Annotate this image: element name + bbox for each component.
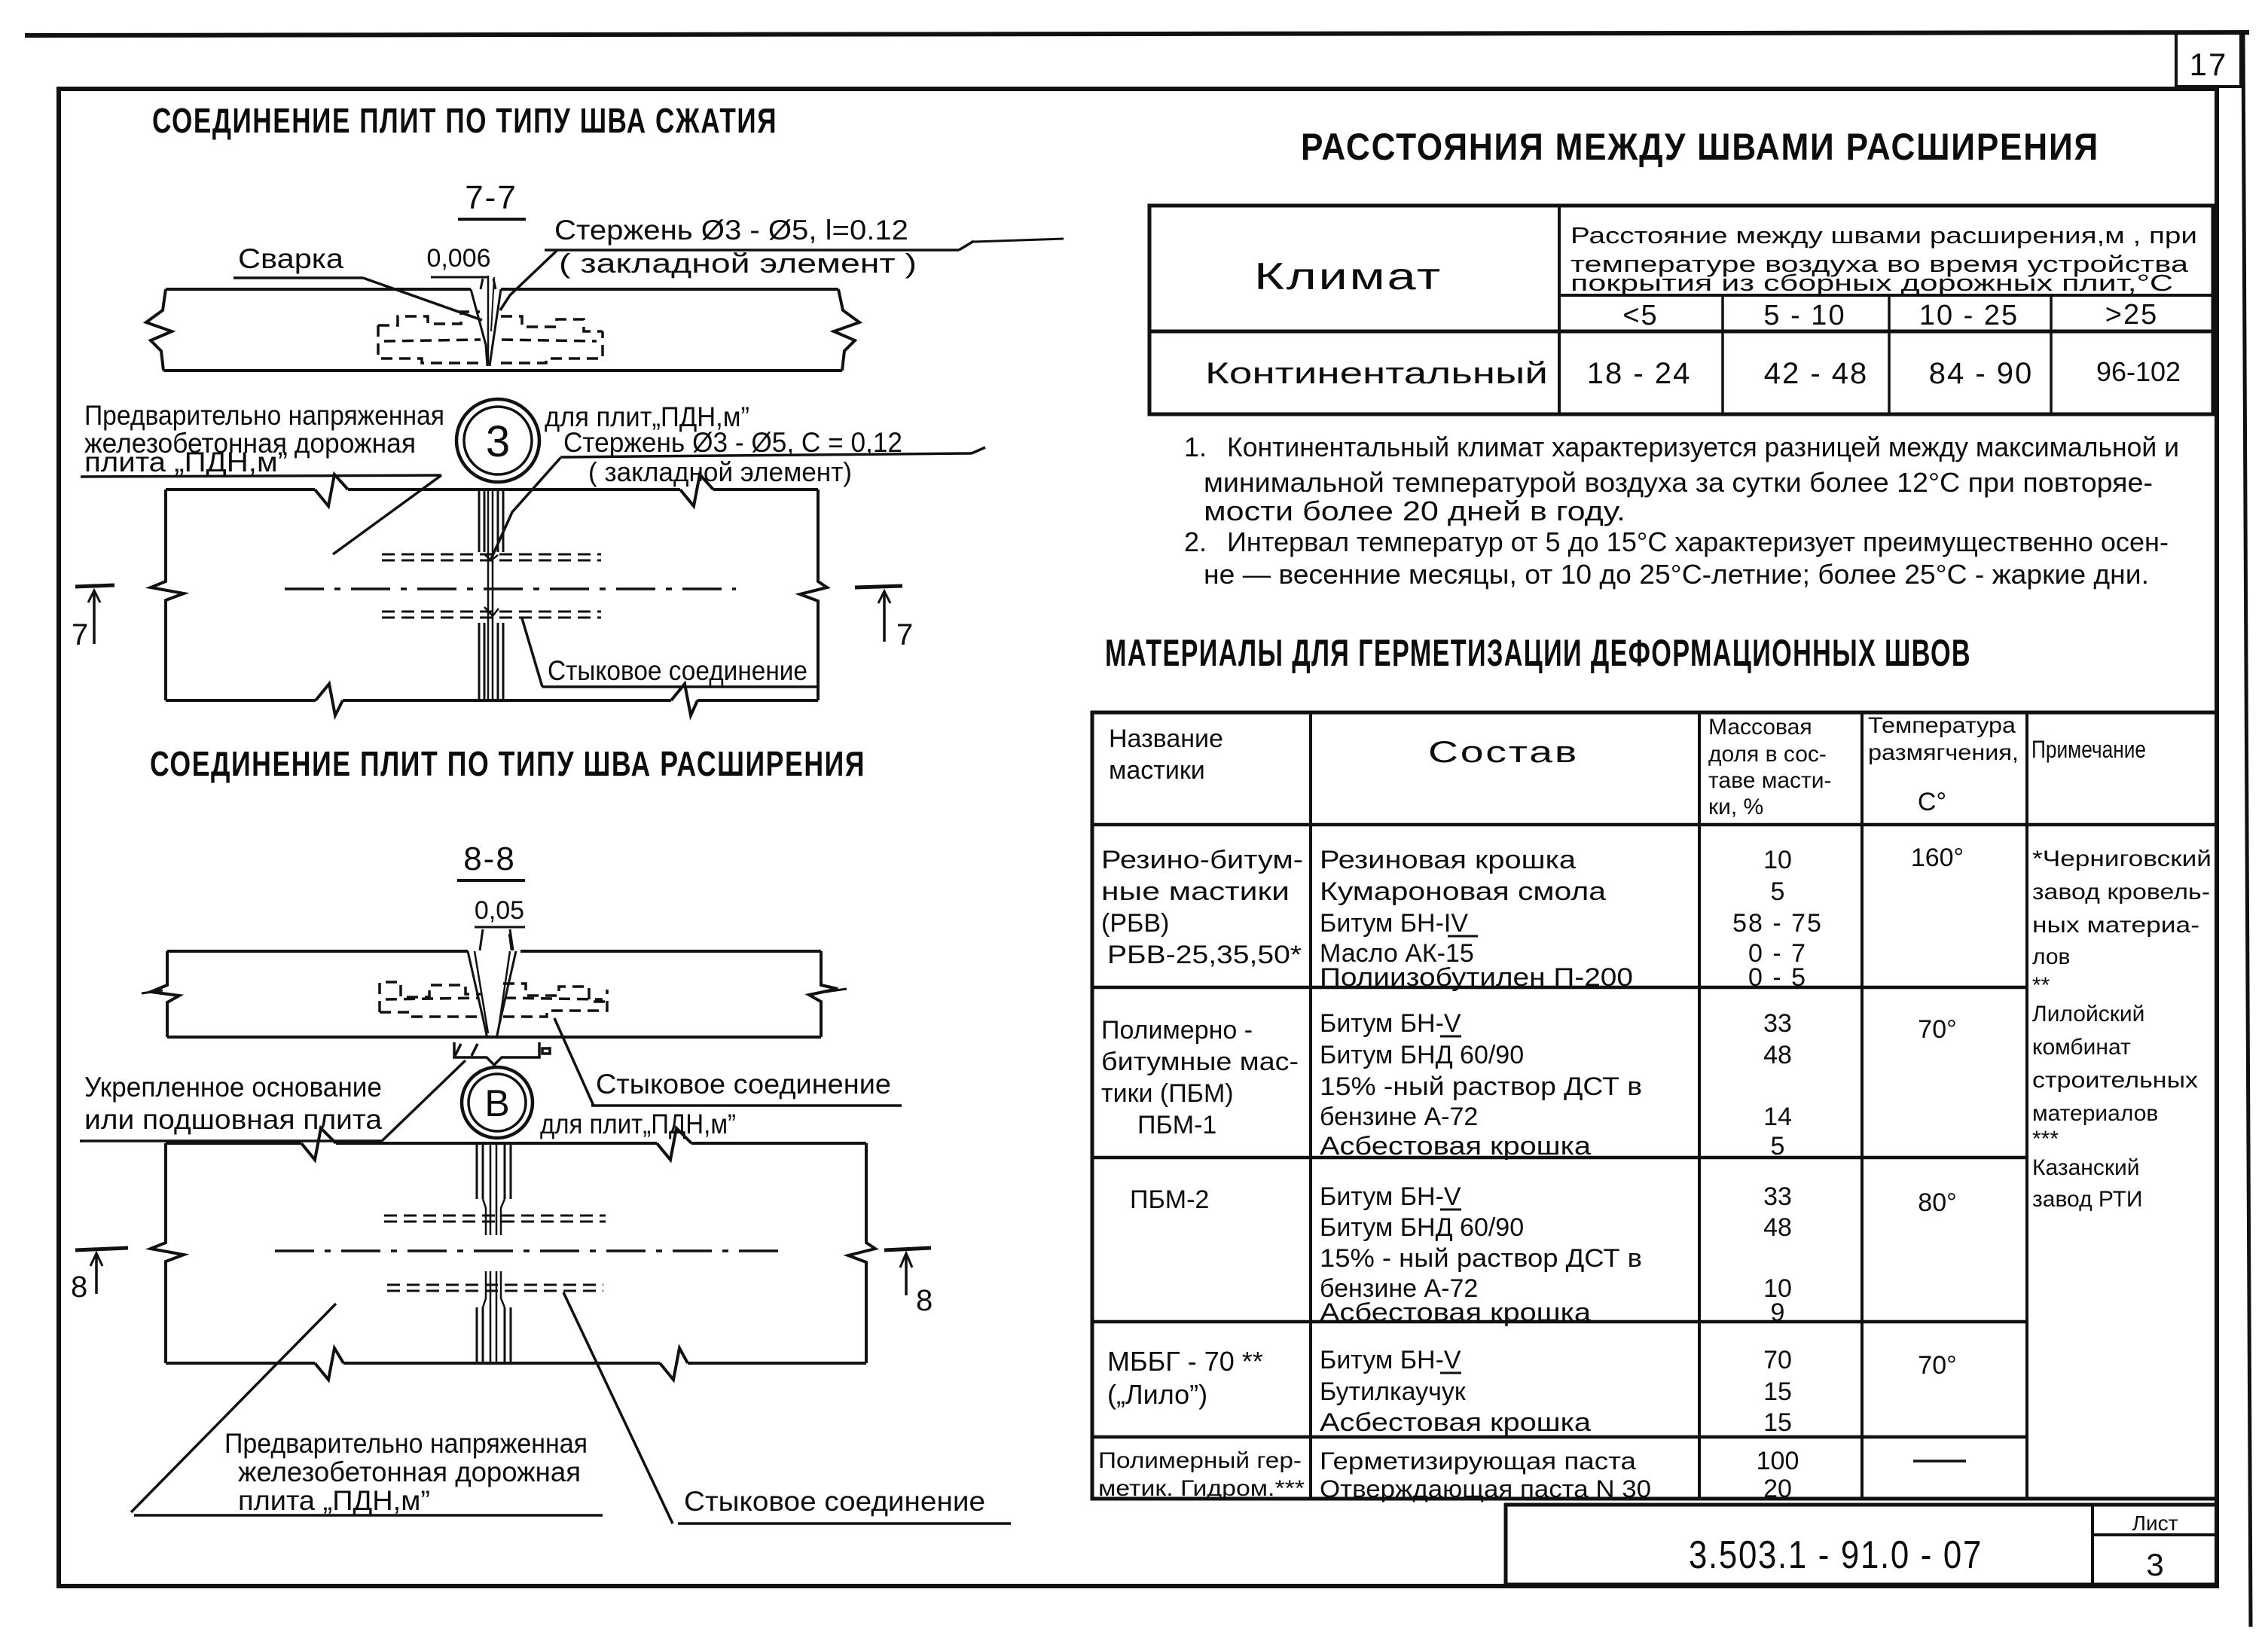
- svg-text:42 - 48: 42 - 48: [1764, 357, 1869, 390]
- svg-text:70°: 70°: [1918, 1015, 1956, 1044]
- svg-text:Укрепленное основание: Укрепленное основание: [84, 1072, 382, 1103]
- svg-text:метик. Гидром.***: метик. Гидром.***: [1098, 1476, 1305, 1501]
- svg-text:Лилойский: Лилойский: [2032, 1002, 2144, 1026]
- svg-text:Асбестовая крошка: Асбестовая крошка: [1320, 1298, 1591, 1327]
- svg-text:Битум БН-IV: Битум БН-IV: [1320, 909, 1468, 938]
- svg-text:Массовая: Массовая: [1708, 715, 1812, 740]
- svg-text:плита „ПДН,м”: плита „ПДН,м”: [238, 1485, 430, 1516]
- svg-text:ПБМ-1: ПБМ-1: [1137, 1111, 1216, 1139]
- svg-text:МББГ - 70 **: МББГ - 70 **: [1107, 1346, 1263, 1377]
- svg-text:70: 70: [1763, 1346, 1792, 1374]
- svg-text:8-8: 8-8: [463, 840, 516, 877]
- svg-text:15% - ный раствор ДСТ в: 15% - ный раствор ДСТ в: [1320, 1244, 1642, 1273]
- svg-text:160°: 160°: [1911, 843, 1964, 872]
- svg-text:1.: 1.: [1184, 432, 1207, 462]
- svg-text:3: 3: [486, 417, 510, 466]
- svg-text:Отверждающая паста N 30: Отверждающая паста N 30: [1320, 1475, 1651, 1502]
- svg-text:минимальной температурой воз: минимальной температурой воздуха за сутк…: [1204, 467, 2153, 498]
- svg-text:Битум БНД 60/90: Битум БНД 60/90: [1320, 1041, 1524, 1069]
- svg-text:ки, %: ки, %: [1708, 795, 1763, 819]
- svg-text:3.503.1 - 91.0 - 07: 3.503.1 - 91.0 - 07: [1689, 1533, 1983, 1577]
- svg-text:33: 33: [1763, 1182, 1792, 1211]
- svg-text:Кумароновая смола: Кумароновая смола: [1320, 877, 1606, 906]
- svg-text:таве масти-: таве масти-: [1708, 768, 1832, 793]
- svg-text:15: 15: [1763, 1377, 1792, 1406]
- svg-text:Резиновая крошка: Резиновая крошка: [1320, 846, 1576, 874]
- svg-text:*Черниговский: *Черниговский: [2032, 847, 2212, 871]
- svg-text:железобетонная дорожная: железобетонная дорожная: [238, 1457, 581, 1487]
- svg-text:Состав: Состав: [1428, 736, 1579, 769]
- svg-text:Стыковое соединение: Стыковое соединение: [548, 655, 807, 686]
- svg-text:Полиизобутилен П-200: Полиизобутилен П-200: [1320, 963, 1633, 992]
- svg-text:бензине А-72: бензине А-72: [1320, 1103, 1478, 1131]
- svg-text:МАТЕРИАЛЫ ДЛЯ ГЕРМЕТИЗАЦИИ: МАТЕРИАЛЫ ДЛЯ ГЕРМЕТИЗАЦИИ ДЕФОРМАЦИОННЫ…: [1105, 632, 1971, 674]
- svg-text:тики (ПБМ): тики (ПБМ): [1101, 1079, 1234, 1108]
- svg-text:(РБВ): (РБВ): [1101, 909, 1169, 938]
- svg-text:мости более 20 дней в году.: мости более 20 дней в году.: [1204, 496, 1625, 526]
- svg-text:17: 17: [2190, 47, 2228, 82]
- svg-text:РАССТОЯНИЯ МЕЖДУ ШВАМИ РАСШ: РАССТОЯНИЯ МЕЖДУ ШВАМИ РАСШИРЕНИЯ: [1301, 126, 2099, 168]
- svg-text:0 - 5: 0 - 5: [1748, 963, 1807, 992]
- svg-text:доля в сос-: доля в сос-: [1708, 742, 1827, 767]
- svg-text:Сварка: Сварка: [238, 243, 343, 274]
- svg-text:Лист: Лист: [2132, 1512, 2178, 1535]
- svg-text:Асбестовая крошка: Асбестовая крошка: [1320, 1408, 1591, 1437]
- svg-text:( закладной элемент): ( закладной элемент): [588, 456, 852, 487]
- svg-text:Примечание: Примечание: [2031, 736, 2146, 763]
- svg-text:мастики: мастики: [1109, 756, 1205, 785]
- svg-text:5 - 10: 5 - 10: [1763, 300, 1845, 331]
- svg-text:48: 48: [1763, 1041, 1792, 1069]
- svg-text:8: 8: [71, 1271, 87, 1304]
- svg-text:15% -ный раствор ДСТ в: 15% -ный раствор ДСТ в: [1320, 1072, 1642, 1101]
- svg-text:10 - 25: 10 - 25: [1919, 300, 2019, 331]
- svg-text:ные мастики: ные мастики: [1101, 877, 1290, 906]
- svg-text:комбинат: комбинат: [2032, 1035, 2131, 1060]
- svg-text:(„Лило”): („Лило”): [1107, 1379, 1207, 1410]
- svg-text:20: 20: [1763, 1475, 1792, 1503]
- svg-text:Расстояние между швами расшире: Расстояние между швами расширения,м , пр…: [1571, 222, 2197, 249]
- svg-text:В: В: [484, 1082, 509, 1124]
- svg-text:Битум БН-V: Битум БН-V: [1320, 1346, 1461, 1374]
- svg-text:Битум БНД 60/90: Битум БНД 60/90: [1320, 1213, 1524, 1242]
- svg-text:ПБМ-2: ПБМ-2: [1130, 1185, 1209, 1214]
- svg-text:ных материа-: ных материа-: [2032, 913, 2199, 938]
- svg-text:РБВ-25,35,50*: РБВ-25,35,50*: [1107, 941, 1302, 969]
- svg-text:0,05: 0,05: [475, 896, 524, 925]
- svg-text:8: 8: [916, 1284, 933, 1317]
- svg-text:15: 15: [1763, 1408, 1792, 1437]
- svg-text:14: 14: [1763, 1103, 1792, 1131]
- svg-text:84 - 90: 84 - 90: [1929, 357, 2034, 390]
- svg-text:80°: 80°: [1918, 1188, 1956, 1217]
- svg-text:для плит„ПДН,м”: для плит„ПДН,м”: [540, 1109, 736, 1139]
- svg-text:Стыковое соединение: Стыковое соединение: [684, 1486, 985, 1517]
- svg-text:33: 33: [1763, 1009, 1792, 1038]
- svg-text:СОЕДИНЕНИЕ ПЛИТ ПО ТИПУ ШВ: СОЕДИНЕНИЕ ПЛИТ ПО ТИПУ ШВА СЖАТИЯ: [152, 101, 777, 140]
- svg-text:Климат: Климат: [1254, 255, 1442, 297]
- svg-text:Континентальный климат харак: Континентальный климат характеризуется р…: [1227, 432, 2179, 462]
- svg-text:Интервал температур от 5 до 1: Интервал температур от 5 до 15°С характе…: [1227, 526, 2169, 557]
- svg-text:3: 3: [2146, 1547, 2163, 1582]
- svg-text:Бутилкаучук: Бутилкаучук: [1320, 1377, 1467, 1406]
- svg-text:Казанский: Казанский: [2032, 1155, 2139, 1180]
- svg-text:9: 9: [1771, 1298, 1785, 1327]
- svg-text:не — весенние месяцы, от 10 до: не — весенние месяцы, от 10 до 25°С-летн…: [1204, 559, 2149, 590]
- svg-text:плита „ПДН,м”: плита „ПДН,м”: [84, 447, 288, 477]
- svg-text:100: 100: [1757, 1447, 1799, 1475]
- svg-text:**: **: [2032, 973, 2050, 998]
- svg-text:Асбестовая крошка: Асбестовая крошка: [1320, 1132, 1591, 1161]
- svg-text:***: ***: [2032, 1127, 2059, 1152]
- svg-text:5: 5: [1771, 1132, 1785, 1161]
- svg-text:Предварительно напряженная: Предварительно напряженная: [224, 1428, 588, 1459]
- svg-text:материалов: материалов: [2032, 1101, 2158, 1126]
- svg-text:Битум БН-V: Битум БН-V: [1320, 1182, 1461, 1211]
- svg-text:0,006: 0,006: [426, 244, 490, 273]
- svg-text:строительных: строительных: [2032, 1068, 2198, 1093]
- svg-text:Название: Название: [1109, 724, 1223, 753]
- svg-text:48: 48: [1763, 1213, 1792, 1242]
- svg-text:Предварительно напряженная: Предварительно напряженная: [84, 400, 444, 431]
- svg-text:18 - 24: 18 - 24: [1587, 357, 1692, 390]
- svg-text:( закладной элемент ): ( закладной элемент ): [559, 248, 917, 279]
- svg-text:7: 7: [896, 618, 913, 651]
- svg-text:лов: лов: [2032, 944, 2070, 969]
- svg-text:размягчения,: размягчения,: [1868, 740, 2019, 765]
- svg-text:>25: >25: [2105, 299, 2158, 331]
- svg-text:Стержень Ø3 - Ø5, l=0.12: Стержень Ø3 - Ø5, l=0.12: [554, 215, 908, 246]
- svg-text:или подшовная плита: или подшовная плита: [84, 1104, 382, 1135]
- svg-text:Полимерно -: Полимерно -: [1101, 1016, 1253, 1045]
- svg-text:СОЕДИНЕНИЕ ПЛИТ ПО ТИПУ ШВ: СОЕДИНЕНИЕ ПЛИТ ПО ТИПУ ШВА РАСШИРЕНИЯ: [150, 744, 865, 783]
- svg-text:С°: С°: [1918, 788, 1946, 816]
- svg-text:завод кровель-: завод кровель-: [2032, 880, 2210, 904]
- svg-text:завод РТИ: завод РТИ: [2032, 1187, 2142, 1212]
- svg-text:7-7: 7-7: [465, 179, 517, 216]
- svg-text:70°: 70°: [1918, 1351, 1956, 1380]
- svg-text:7: 7: [72, 618, 88, 651]
- svg-text:Битум БН-V: Битум БН-V: [1320, 1009, 1461, 1038]
- svg-text:Стыковое соединение: Стыковое соединение: [596, 1069, 891, 1100]
- svg-text:Резино-битум-: Резино-битум-: [1101, 846, 1303, 874]
- svg-text:<5: <5: [1622, 300, 1658, 331]
- svg-text:Герметизирующая паста: Герметизирующая паста: [1320, 1447, 1636, 1475]
- svg-text:5: 5: [1771, 877, 1785, 906]
- svg-text:покрытия из сборных дорожны: покрытия из сборных дорожных плит,°С: [1571, 270, 2173, 296]
- svg-text:Континентальный: Континентальный: [1205, 357, 1548, 390]
- svg-text:10: 10: [1763, 846, 1792, 874]
- svg-text:58 - 75: 58 - 75: [1732, 909, 1823, 938]
- svg-text:битумные мас-: битумные мас-: [1101, 1048, 1299, 1076]
- svg-text:96-102: 96-102: [2096, 356, 2181, 387]
- svg-text:Полимерный гер-: Полимерный гер-: [1098, 1448, 1302, 1473]
- svg-text:Температура: Температура: [1868, 713, 2016, 738]
- svg-text:2.: 2.: [1184, 526, 1207, 557]
